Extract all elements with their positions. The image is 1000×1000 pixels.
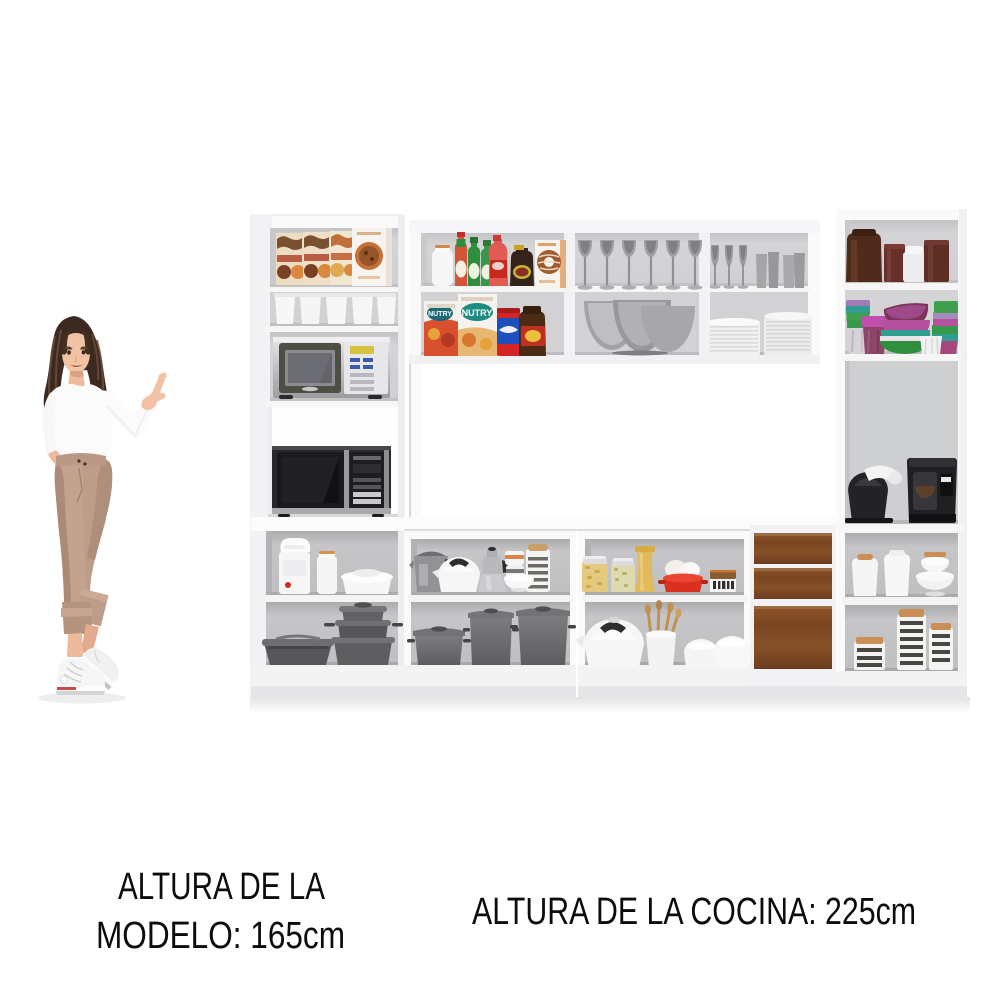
svg-text:MODELO: 165cm: MODELO: 165cm xyxy=(96,915,345,957)
svg-text:NUTRY: NUTRY xyxy=(462,308,493,318)
svg-text:ALTURA DE LA COCINA: 225cm: ALTURA DE LA COCINA: 225cm xyxy=(472,891,916,933)
svg-text:ALTURA DE LA: ALTURA DE LA xyxy=(118,866,326,908)
svg-text:NUTRY: NUTRY xyxy=(428,311,452,318)
